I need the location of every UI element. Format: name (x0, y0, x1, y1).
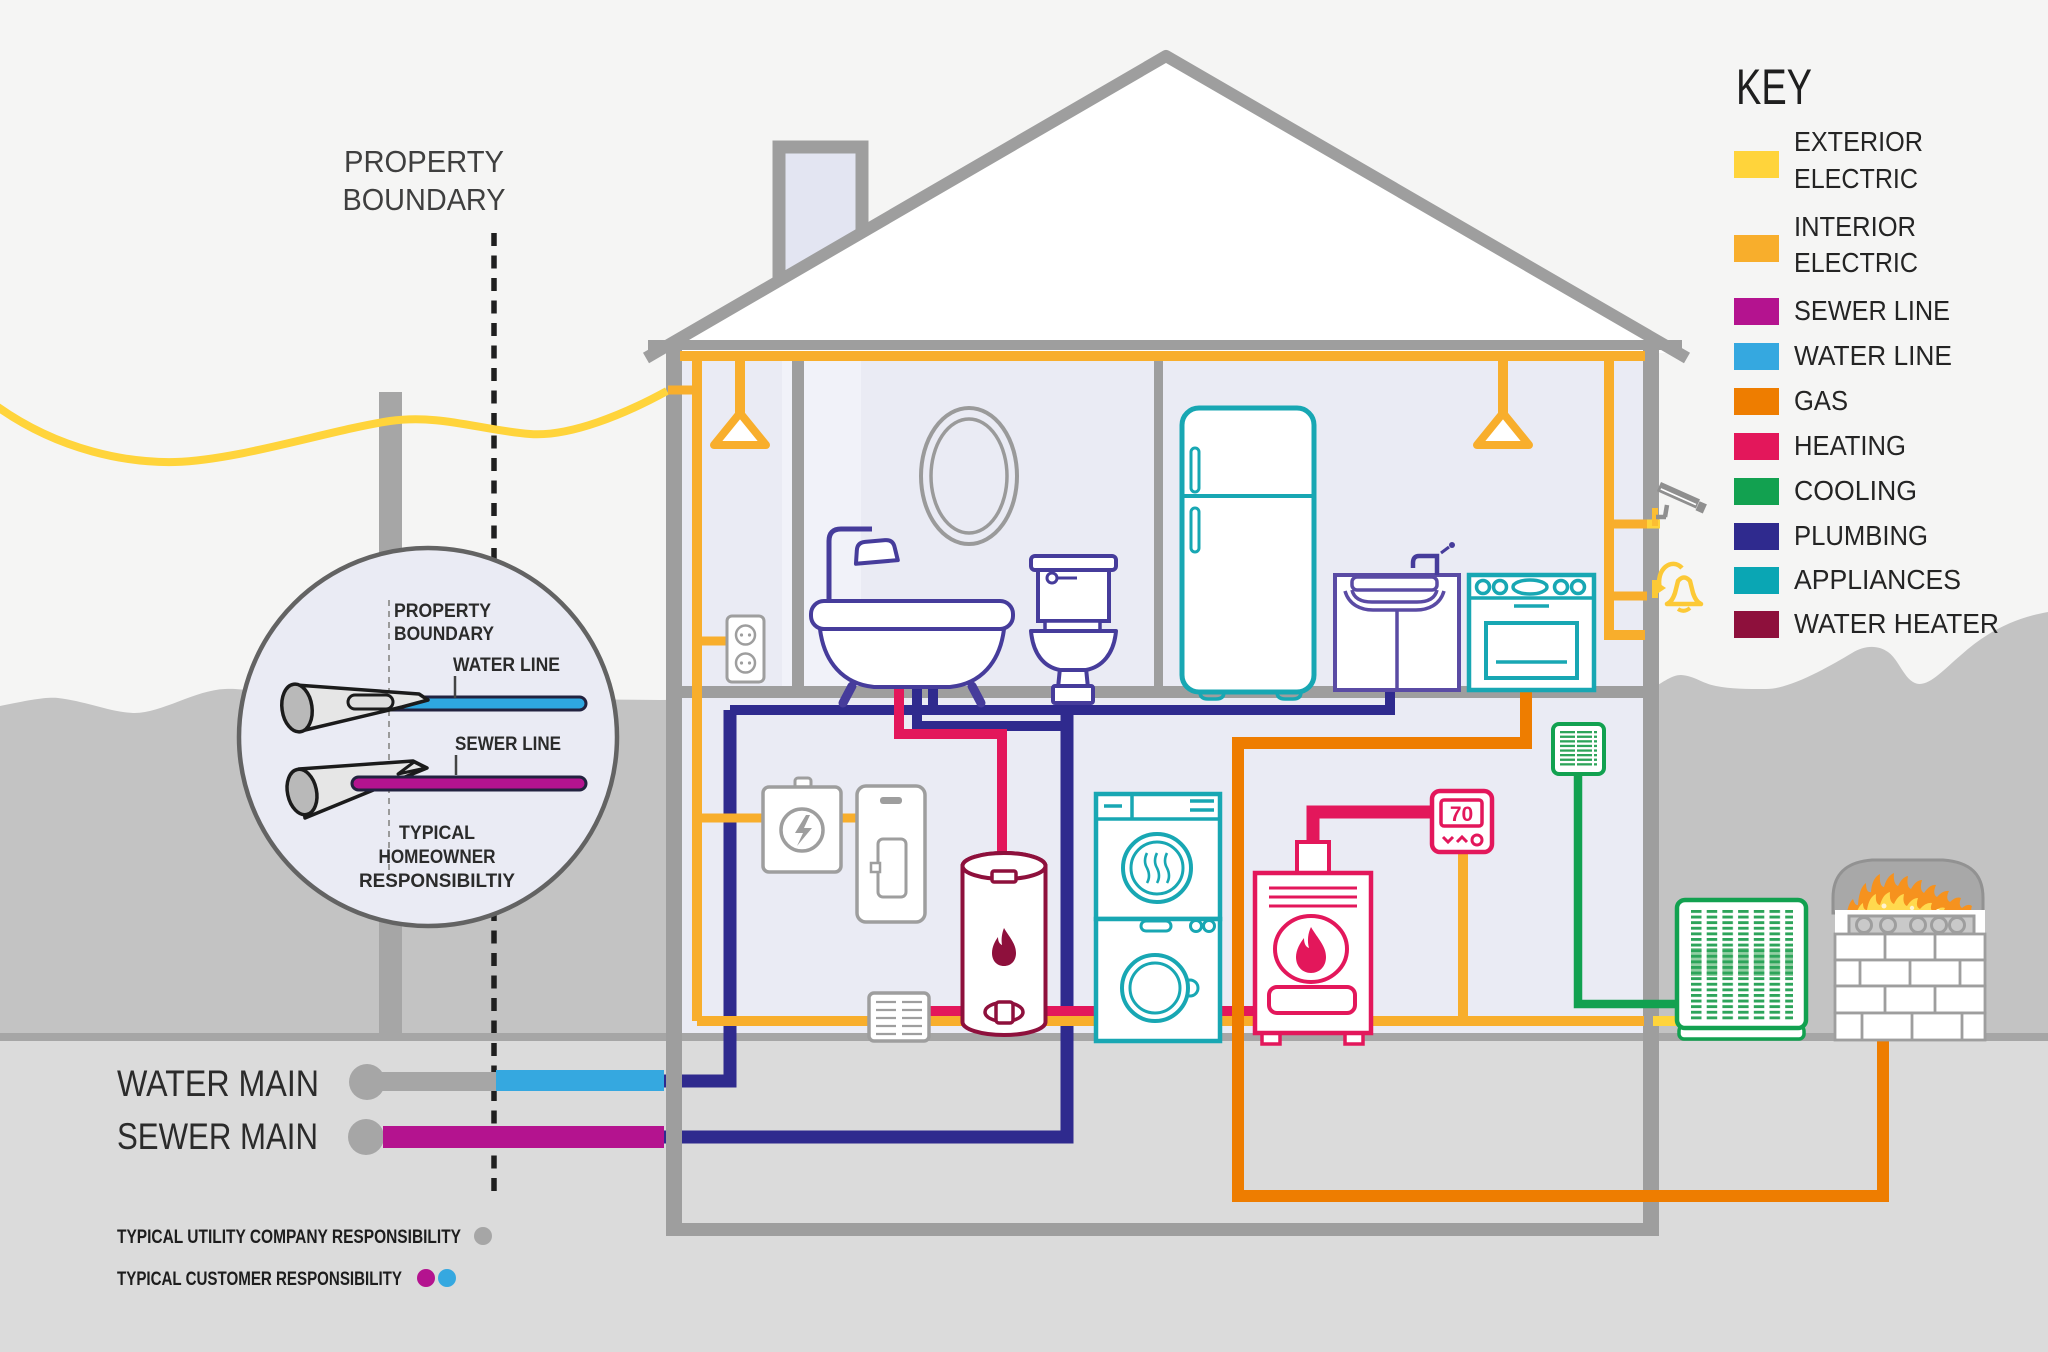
svg-text:ELECTRIC: ELECTRIC (1794, 247, 1918, 278)
svg-text:SEWER MAIN: SEWER MAIN (117, 1116, 318, 1157)
svg-text:BOUNDARY: BOUNDARY (394, 623, 494, 645)
svg-text:PROPERTY: PROPERTY (344, 144, 504, 179)
svg-text:COOLING: COOLING (1794, 475, 1917, 506)
svg-text:WATER MAIN: WATER MAIN (117, 1063, 319, 1104)
svg-text:SEWER LINE: SEWER LINE (1794, 295, 1950, 326)
svg-text:SEWER LINE: SEWER LINE (455, 733, 561, 755)
svg-text:PROPERTY: PROPERTY (394, 600, 491, 622)
svg-text:KEY: KEY (1736, 59, 1812, 115)
svg-text:TYPICAL CUSTOMER RESPONSIBILIT: TYPICAL CUSTOMER RESPONSIBILITY (117, 1268, 402, 1290)
svg-text:PLUMBING: PLUMBING (1794, 520, 1928, 551)
svg-text:TYPICAL UTILITY COMPANY RESPO: TYPICAL UTILITY COMPANY RESPONSIBILITY (117, 1226, 461, 1248)
svg-text:BOUNDARY: BOUNDARY (343, 182, 506, 217)
svg-text:EXTERIOR: EXTERIOR (1794, 126, 1923, 157)
svg-text:INTERIOR: INTERIOR (1794, 211, 1916, 242)
svg-text:WATER HEATER: WATER HEATER (1794, 608, 1999, 639)
svg-text:70: 70 (1450, 803, 1473, 826)
svg-text:APPLIANCES: APPLIANCES (1794, 564, 1961, 595)
svg-text:WATER LINE: WATER LINE (453, 654, 560, 676)
svg-text:RESPONSIBILTIY: RESPONSIBILTIY (359, 870, 515, 892)
svg-text:TYPICAL: TYPICAL (399, 822, 475, 844)
svg-text:GAS: GAS (1794, 385, 1848, 416)
svg-text:HOMEOWNER: HOMEOWNER (379, 846, 496, 868)
svg-text:WATER LINE: WATER LINE (1794, 340, 1952, 371)
svg-text:HEATING: HEATING (1794, 430, 1906, 461)
svg-text:ELECTRIC: ELECTRIC (1794, 163, 1918, 194)
